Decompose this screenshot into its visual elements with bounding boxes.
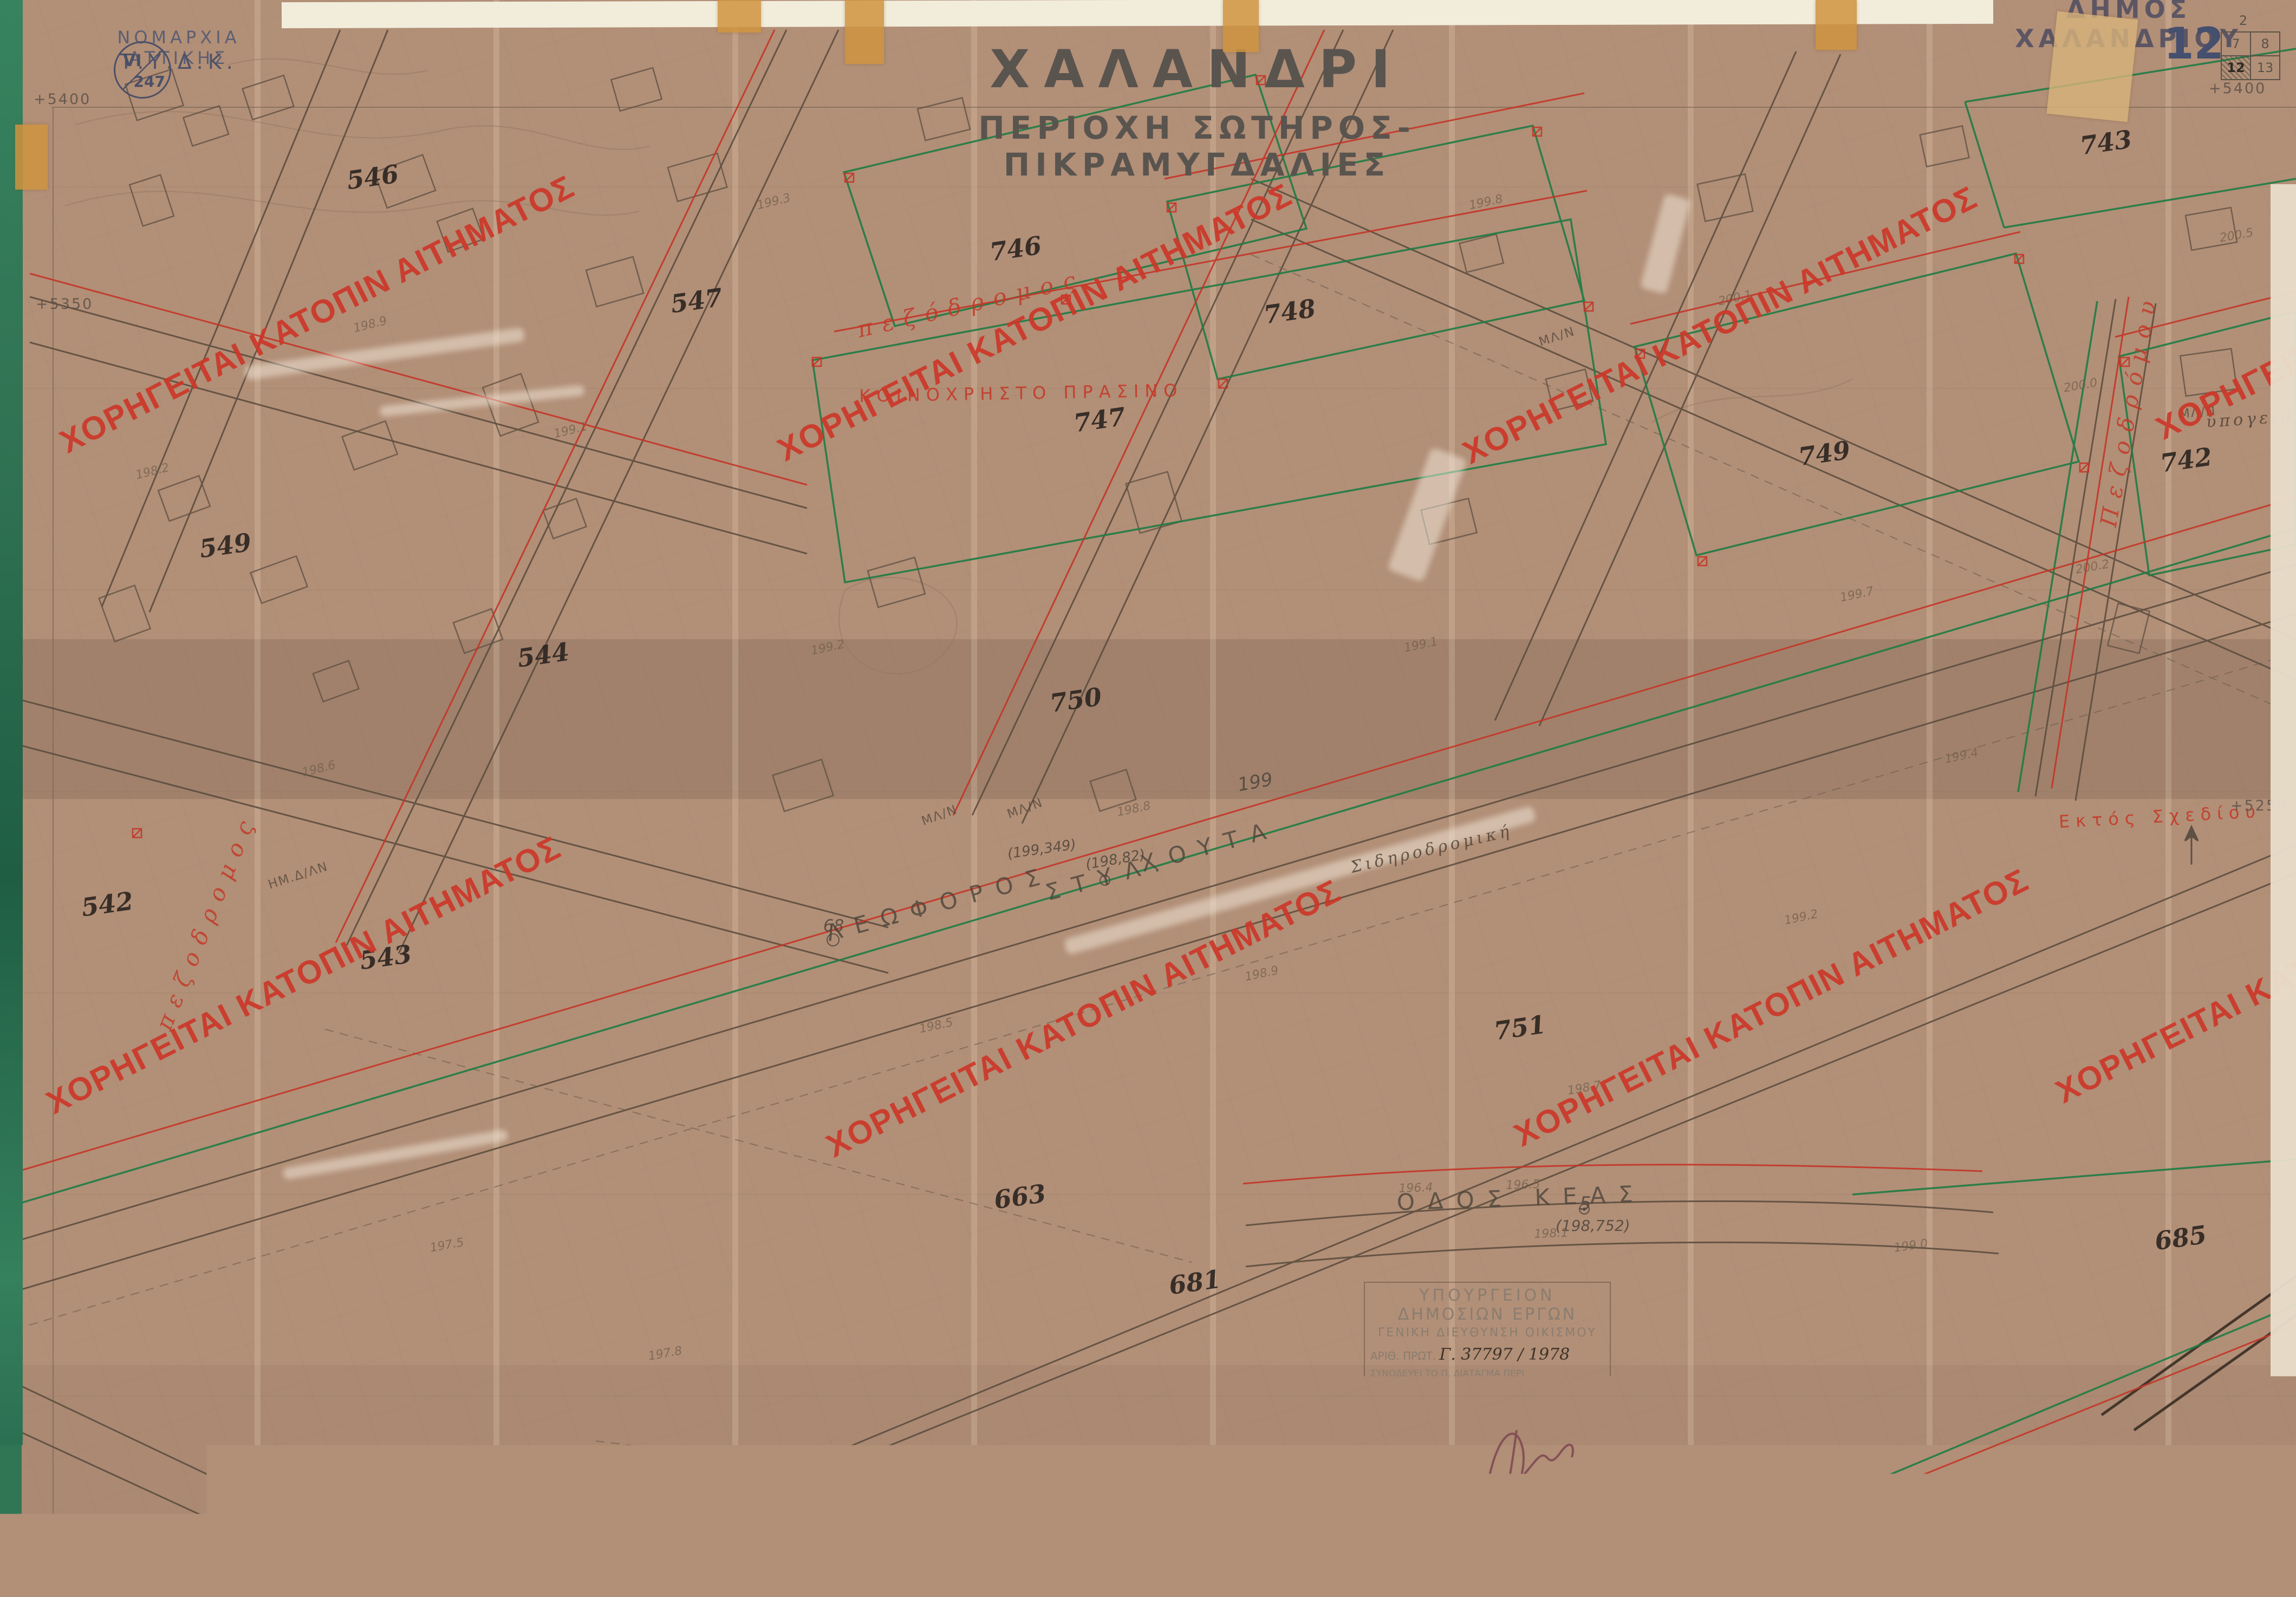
- tape-piece: [1816, 0, 1857, 50]
- watermark-layer: ΧΟΡΗΓΕΙΤΑΙ ΚΑΤΟΠΙΝ ΑΙΤΗΜΑΤΟΣΧΟΡΗΓΕΙΤΑΙ Κ…: [0, 0, 2296, 1597]
- paper-top-edge: [282, 0, 1993, 28]
- tape-piece: [1223, 0, 1259, 52]
- tape-piece: [845, 0, 884, 64]
- scanned-cadastral-map: ΛΕΩΦΟΡΟΣΣΤΥΛ.ΧΟΥΤΑΟΔΟΣ ΚΕΑΣπεζόδρομοςπεζ…: [0, 0, 2296, 1597]
- watermark-text: ΧΟΡΗΓΕΙΤΑΙ ΚΑΤΟΠΙΝ ΑΙΤΗΜΑΤΟΣ: [1456, 178, 1983, 471]
- green-backing-left-edge: [0, 0, 23, 1597]
- tape-piece: [15, 125, 48, 190]
- watermark-text: ΧΟΡΗΓΕΙΤΑΙ ΚΑΤΟΠΙΝ ΑΙΤΗΜΑΤΟΣ: [820, 872, 1347, 1165]
- watermark-text: ΧΟΡΗΓΕΙΤΑΙ ΚΑΤΟΠΙΝ ΑΙΤΗΜΑΤΟΣ: [771, 176, 1298, 469]
- paper-bottom-edge: [61, 1572, 2296, 1597]
- tape-piece: [718, 0, 761, 33]
- tape-piece: [2046, 11, 2138, 122]
- watermark-text: ΧΟΡΗΓΕΙΤΑΙ ΚΑΤΟΠΙΝ ΑΙΤΗΜΑΤΟΣ: [1508, 861, 2034, 1154]
- watermark-text: ΧΟΡΗΓΕΙΤΑΙ ΚΑΤΟΠΙΝ ΑΙΤΗΜΑΤΟΣ: [54, 167, 580, 460]
- paper-right-edge: [2271, 184, 2296, 1572]
- watermark-text: ΧΟΡΗΓΕΙΤΑΙ ΚΑΤΟΠΙΝ ΑΙΤΗΜΑΤΟΣ: [40, 828, 567, 1121]
- tape-piece: [2148, 1558, 2213, 1594]
- watermark-text: ΧΟΡΗΓΕΙΤΑΙ ΚΑΤΟΠΙΝ ΑΙΤΗΜΑΤΟΣ: [2050, 817, 2296, 1111]
